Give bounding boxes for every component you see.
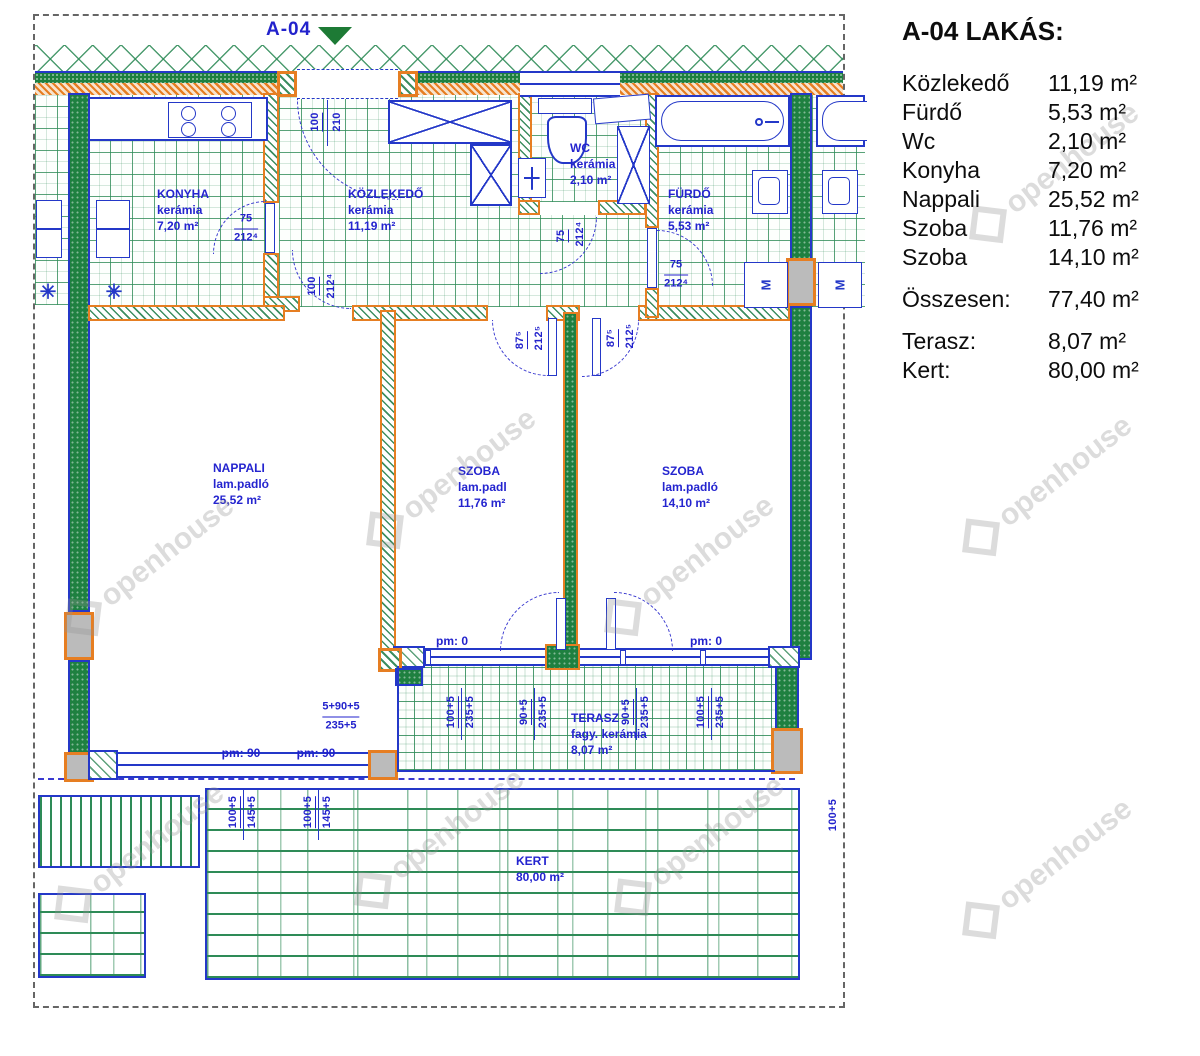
terasz-dim-1b: 235+5: [464, 696, 476, 728]
wc-door-dim-w: 75: [555, 230, 569, 243]
unit-marker-label: A-04: [266, 19, 311, 41]
szoba2-door-dim-w: 87⁵: [605, 329, 619, 347]
terasz-dim-4b: 235+5: [714, 696, 726, 728]
furdo-door-dim: 75 212⁴: [664, 257, 688, 292]
nappali-szoba-wall: [380, 310, 396, 660]
washbasin-inner: [758, 177, 780, 205]
terasz-dim-3b: 235+5: [639, 696, 651, 728]
terrace-mullion-2: [620, 650, 626, 665]
right-column: [786, 258, 816, 306]
bathtub: [655, 95, 790, 147]
entrance-opening: [297, 69, 398, 99]
faucet-icon: [755, 118, 763, 126]
kozlekedo-label: KÖZLEKEDŐ kerámia 11,19 m²: [348, 186, 423, 235]
entrance-jamb-left: [277, 71, 297, 97]
left-dim-2a: 100+5: [302, 796, 316, 828]
burner-icon: [221, 106, 236, 121]
nappali-label: NAPPALI lam.padló 25,52 m²: [213, 460, 269, 509]
right-party-wall-top: [790, 93, 812, 260]
top-window: [520, 71, 620, 97]
terrace-mullion-1: [425, 650, 431, 665]
garden-right-dim: 100+5: [827, 799, 839, 831]
cooktop-symbol: ✳: [40, 280, 57, 305]
pm-zero-label-1: pm: 0: [436, 634, 468, 648]
neighbor-washbasin-inner: [828, 177, 850, 205]
left-dim-1a: 100+5: [227, 796, 241, 828]
nappali-corner-column: [368, 750, 398, 780]
szoba2-label: SZOBA lam.padló 14,10 m²: [662, 463, 718, 512]
dim-line: [534, 688, 535, 740]
szoba1-door-dim-w: 87⁵: [514, 331, 528, 349]
top-exterior-wall: [35, 71, 843, 97]
burner-icon: [181, 122, 196, 137]
pm-ninety-label-2: pm: 90: [297, 746, 336, 760]
kert-brick-area: [205, 788, 800, 980]
pm-zero-label-2: pm: 0: [690, 634, 722, 648]
legend-kert-row: Kert: 80,00 m²: [902, 356, 1196, 385]
konyha-door-dim: 75 212⁴: [234, 211, 258, 246]
left-column: [64, 612, 94, 660]
neighbor-washing-machine-label: M: [833, 280, 848, 291]
washbasin: [752, 170, 788, 214]
legend-row: Szoba 11,76 m²: [902, 214, 1196, 243]
right-party-wall-bottom: [790, 306, 812, 660]
wall-masonry-band: [35, 83, 843, 95]
legend-panel: A-04 LAKÁS: Közlekedő 11,19 m² Fürdő 5,5…: [902, 16, 1196, 385]
neighbor-bathtub-inner: [822, 101, 867, 141]
terrace-right-wall: [775, 666, 799, 730]
entrance-jamb-right: [398, 71, 418, 97]
nappali-window-dim: 5+90+5 235+5: [322, 699, 359, 734]
burner-icon: [221, 122, 236, 137]
hall-pass-dim-h: 212⁴: [325, 274, 337, 299]
openhouse-logo-icon: [962, 901, 1000, 939]
konyha-label: KONYHA kerámia 7,20 m²: [157, 186, 209, 235]
terrace-edge-line: [397, 770, 775, 772]
openhouse-logo-icon: [962, 518, 1000, 556]
burner-icon: [181, 106, 196, 121]
pm-ninety-label-1: pm: 90: [222, 746, 261, 760]
legend-row: Fürdő 5,53 m²: [902, 98, 1196, 127]
dim-line: [461, 688, 462, 740]
konyha-door-leaf: [265, 203, 275, 253]
wc-door-dim-h: 212⁴: [574, 222, 586, 247]
nappali-window-jamb: [88, 750, 118, 780]
terrace-green-block-1: [395, 668, 423, 686]
furdo-left-wall-bottom: [645, 288, 659, 318]
dim-line: [711, 688, 712, 740]
wc-label: WC kerámia 2,10 m²: [570, 140, 615, 189]
corridor-hatch-band: [35, 45, 843, 73]
shower-niche: [617, 126, 650, 204]
szoba1-door-leaf: [548, 318, 557, 376]
terasz-dim-2a: 90+5: [518, 699, 532, 725]
furdo-door-leaf: [647, 228, 657, 288]
wall-insulation-band: [35, 73, 843, 83]
entry-dim-w: 100: [309, 112, 323, 131]
legend-row: Közlekedő 11,19 m²: [902, 69, 1196, 98]
terasz-label: TERASZ fagy. kerámia 8,07 m²: [571, 710, 647, 759]
kitchen-cabinet: [96, 200, 130, 258]
hall-pass-dim-w: 100: [306, 276, 320, 295]
legend-row: Konyha 7,20 m²: [902, 156, 1196, 185]
legend-terasz-row: Terasz: 8,07 m²: [902, 327, 1196, 356]
watermark: openhouse: [957, 792, 1139, 944]
szoba1-door-dim-h: 212⁵: [533, 326, 545, 351]
garden-boundary-dashed: [38, 778, 795, 780]
szoba1-label: SZOBA lam.padl 11,76 m²: [458, 463, 507, 512]
terasz-dim-1a: 100+5: [445, 696, 459, 728]
wc-cistern: [538, 98, 592, 114]
dim-line: [327, 100, 328, 146]
main-horizontal-wall-1: [88, 305, 285, 321]
legend-row: Wc 2,10 m²: [902, 127, 1196, 156]
terasz-dim-4a: 100+5: [695, 696, 709, 728]
furdo-label: FÜRDŐ kerámia 5,53 m²: [668, 186, 713, 235]
planter-strip: [38, 795, 200, 868]
entrance-triangle-icon: [318, 27, 352, 45]
faucet-arrow: [765, 121, 779, 123]
cooktop-symbol-2: ✳: [106, 280, 123, 305]
neighbor-washbasin: [822, 170, 858, 214]
dim-line: [318, 788, 319, 840]
szoba2-door-dim-h: 212⁵: [624, 324, 636, 349]
neighbor-cabinet: [36, 200, 62, 258]
wardrobe-box-v: [470, 144, 512, 206]
wc-shelf: [593, 94, 651, 125]
washing-machine-label: M: [759, 280, 774, 291]
terrace-mullion-3: [700, 650, 706, 665]
entry-dim-h: 210: [331, 112, 343, 131]
terrace-left-edge: [397, 666, 399, 770]
wardrobe-box-h: [388, 100, 512, 144]
kert-label: KERT 80,00 m²: [516, 853, 564, 885]
neighbor-bathtub: [816, 95, 865, 147]
terrace-right-column: [771, 728, 803, 774]
left-dim-1b: 145+5: [246, 796, 258, 828]
legend-row: Szoba 14,10 m²: [902, 243, 1196, 272]
legend-title: A-04 LAKÁS:: [902, 16, 1196, 47]
main-horizontal-wall-2: [352, 305, 488, 321]
dim-line: [243, 788, 244, 840]
legend-row: Nappali 25,52 m²: [902, 185, 1196, 214]
wc-bottom-wall-1: [518, 200, 540, 215]
watermark: openhouse: [957, 409, 1139, 561]
floorplan-canvas: A-04: [0, 0, 1200, 1056]
terrace-jamb-hatch-2: [768, 646, 800, 668]
left-terrace-wall: [68, 660, 90, 755]
left-exterior-wall: [68, 93, 90, 612]
terasz-dim-3a: 90+5: [620, 699, 634, 725]
terasz-dim-2b: 235+5: [537, 696, 549, 728]
wc-handbasin: [518, 158, 546, 198]
left-dim-2b: 145+5: [321, 796, 333, 828]
stove: [168, 102, 252, 138]
kert-brick-left: [38, 893, 146, 978]
legend-total-row: Összesen: 77,40 m²: [902, 285, 1196, 314]
terrace-glazing-band: [395, 648, 800, 666]
